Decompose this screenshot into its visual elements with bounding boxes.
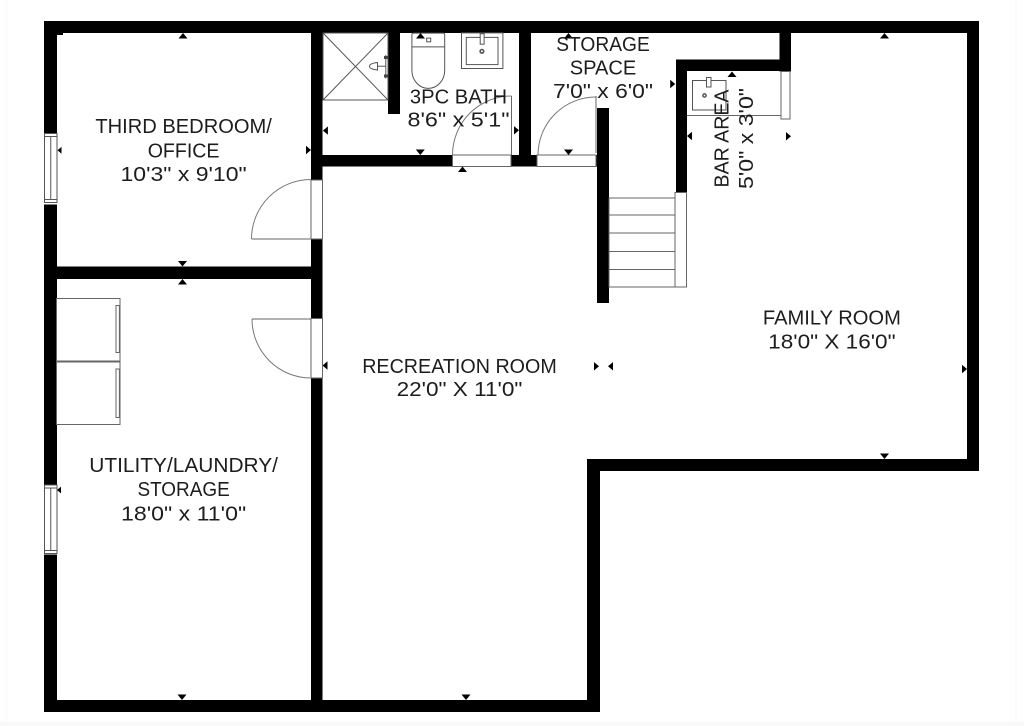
svg-text:8'6" x 5'1": 8'6" x 5'1" [408, 110, 510, 132]
svg-text:OFFICE: OFFICE [148, 140, 220, 162]
svg-text:18'0" X 16'0": 18'0" X 16'0" [768, 331, 895, 353]
svg-text:STORAGE: STORAGE [556, 34, 650, 56]
svg-text:22'0" X 11'0": 22'0" X 11'0" [397, 379, 523, 401]
svg-text:STORAGE: STORAGE [137, 479, 229, 501]
svg-text:FAMILY ROOM: FAMILY ROOM [763, 308, 901, 330]
svg-text:3PC BATH: 3PC BATH [410, 87, 507, 109]
svg-text:RECREATION ROOM: RECREATION ROOM [362, 356, 557, 378]
svg-text:UTILITY/LAUNDRY/: UTILITY/LAUNDRY/ [89, 455, 278, 477]
svg-text:5'0" x 3'0": 5'0" x 3'0" [736, 88, 758, 189]
svg-text:THIRD BEDROOM/: THIRD BEDROOM/ [95, 116, 272, 138]
svg-text:SPACE: SPACE [570, 58, 637, 80]
svg-text:10'3" x 9'10": 10'3" x 9'10" [121, 164, 247, 186]
svg-text:BAR AREA: BAR AREA [712, 89, 734, 188]
svg-text:18'0" x 11'0": 18'0" x 11'0" [121, 503, 246, 525]
svg-text:7'0" x 6'0": 7'0" x 6'0" [553, 81, 653, 103]
